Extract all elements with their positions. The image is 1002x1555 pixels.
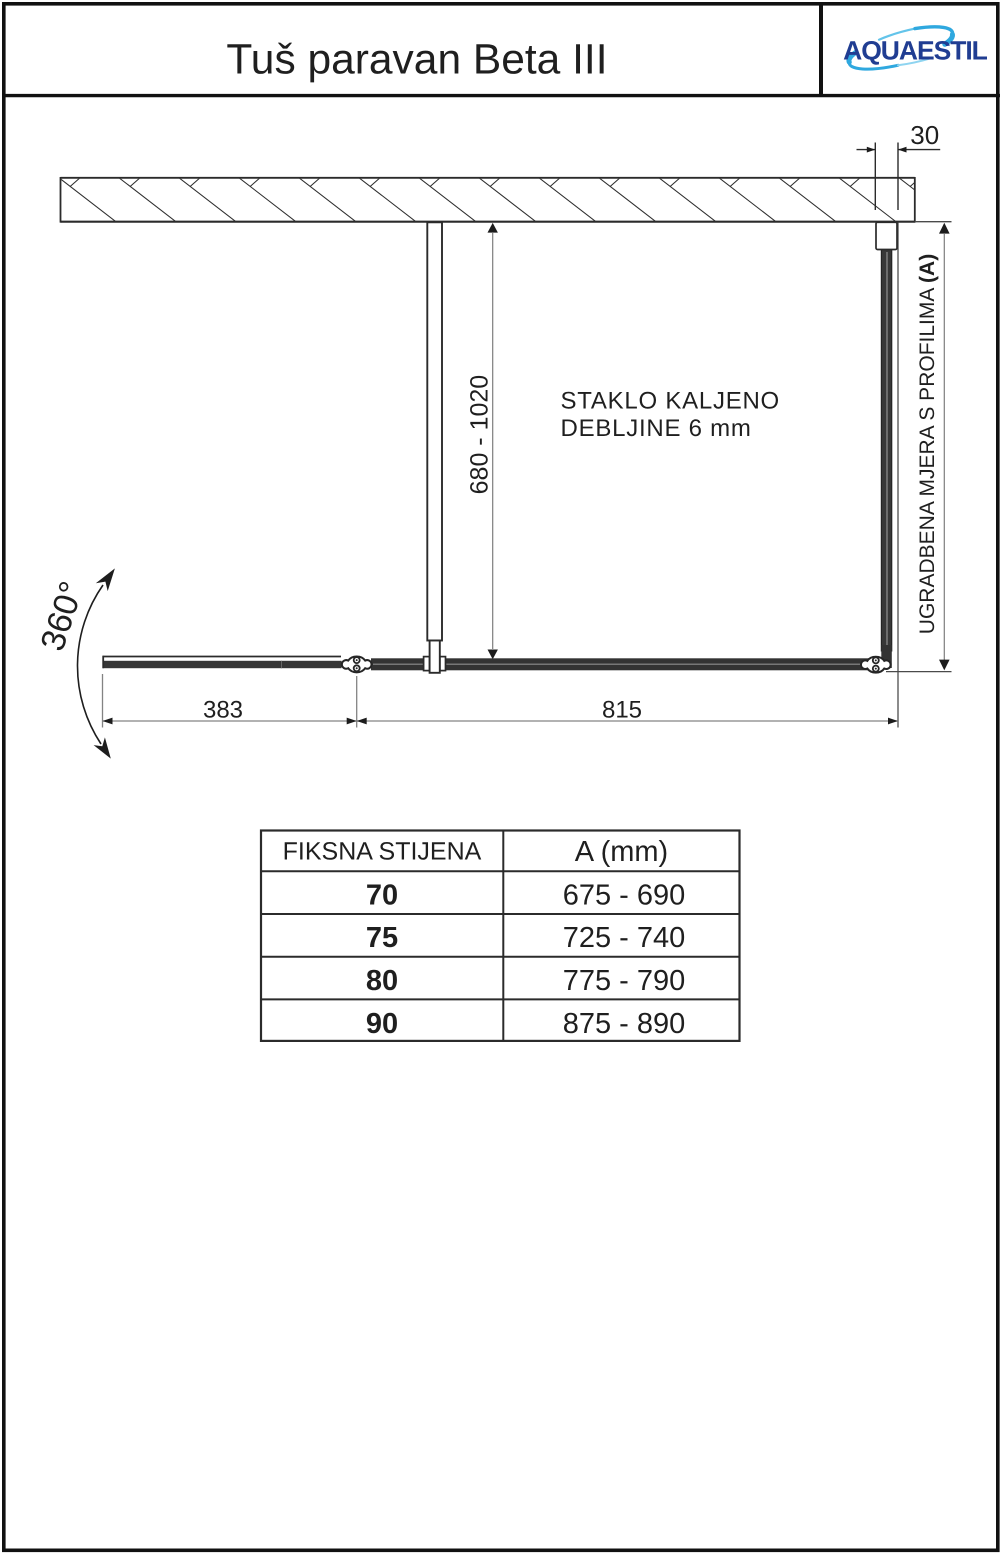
svg-text:Tuš paravan Beta III: Tuš paravan Beta III <box>226 37 607 84</box>
svg-text:80: 80 <box>366 965 398 997</box>
svg-text:815: 815 <box>602 697 642 724</box>
svg-text:30: 30 <box>910 120 939 150</box>
svg-text:90: 90 <box>366 1008 398 1040</box>
svg-text:A (mm): A (mm) <box>575 836 668 868</box>
svg-text:875 - 890: 875 - 890 <box>563 1008 686 1040</box>
svg-text:75: 75 <box>366 922 398 954</box>
svg-text:725 - 740: 725 - 740 <box>563 922 686 954</box>
svg-text:DEBLJINE 6 mm: DEBLJINE 6 mm <box>561 415 752 442</box>
svg-text:FIKSNA STIJENA: FIKSNA STIJENA <box>283 838 482 866</box>
svg-text:STAKLO KALJENO: STAKLO KALJENO <box>561 388 780 415</box>
svg-text:383: 383 <box>203 697 243 724</box>
svg-text:AQUAESTIL: AQUAESTIL <box>843 35 988 65</box>
svg-text:675 - 690: 675 - 690 <box>563 880 686 912</box>
svg-text:70: 70 <box>366 880 398 912</box>
svg-text:775 - 790: 775 - 790 <box>563 965 686 997</box>
svg-text:UGRADBENA MJERA S PROFILIMA (A: UGRADBENA MJERA S PROFILIMA (A) <box>916 254 939 634</box>
svg-text:680 - 1020: 680 - 1020 <box>465 375 493 495</box>
